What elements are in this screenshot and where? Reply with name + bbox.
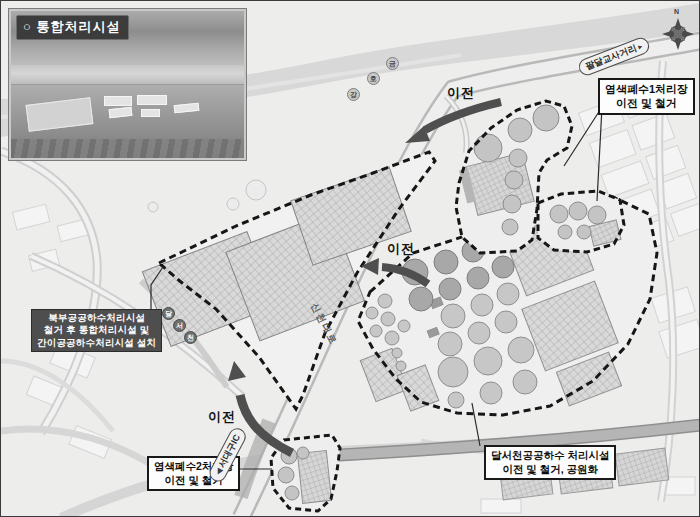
map-canvas: ○ 통합처리시설 염색폐수1처리장 이전 및 철거 북부공공하수처리시설 철거 … bbox=[0, 0, 700, 517]
inset-building bbox=[108, 107, 132, 118]
park-circles bbox=[148, 180, 266, 212]
river-name-char: 금 bbox=[386, 57, 399, 70]
callout-bukbu-line1: 북부공공하수처리시설 bbox=[37, 312, 156, 324]
inset-title: ○ 통합처리시설 bbox=[16, 15, 129, 40]
callout-dye1-line1: 염색폐수1처리장 bbox=[605, 82, 688, 96]
stream-name-char: 서 bbox=[173, 319, 186, 332]
stream-name-char: 달 bbox=[162, 307, 175, 320]
inset-river bbox=[11, 65, 244, 84]
inset-field bbox=[26, 97, 94, 132]
relocate-label-top: 이전 bbox=[447, 84, 475, 102]
relocate-label-mid: 이전 bbox=[387, 240, 415, 258]
inset-building bbox=[174, 102, 200, 112]
callout-dye1: 염색폐수1처리장 이전 및 철거 bbox=[598, 78, 695, 115]
compass-north-label: N bbox=[674, 8, 679, 15]
callout-dalseocheon: 달서천공공하수 처리시설 이전 및 철거, 공원화 bbox=[484, 445, 616, 480]
direction-right-icon: ▸ bbox=[637, 42, 644, 52]
inset-facility-area bbox=[11, 85, 244, 159]
callout-dalseocheon-line1: 달서천공공하수 처리시설 bbox=[491, 449, 609, 463]
river-name-char: 호 bbox=[367, 72, 380, 85]
relocate-label-bottom: 이전 bbox=[208, 408, 236, 426]
river-name-char: 강 bbox=[347, 88, 360, 101]
stream-name-char: 천 bbox=[184, 331, 197, 344]
callout-bukbu-line2: 철거 후 통합처리시설 및 bbox=[37, 324, 156, 336]
callout-bukbu-line3: 간이공공하수처리시설 설치 bbox=[37, 337, 156, 349]
inset-building bbox=[141, 109, 159, 117]
callout-dye1-line2: 이전 및 철거 bbox=[605, 96, 688, 110]
inset-treeline bbox=[11, 139, 244, 158]
inset-building bbox=[104, 96, 132, 106]
relocation-arrowhead-bottom bbox=[228, 361, 246, 381]
callout-bukbu: 북부공공하수처리시설 철거 후 통합처리시설 및 간이공공하수처리시설 설치 bbox=[31, 309, 162, 352]
inset-building bbox=[137, 95, 167, 105]
callout-dalseocheon-line2: 이전 및 철거, 공원화 bbox=[491, 463, 609, 477]
aerial-photo-inset: ○ 통합처리시설 bbox=[9, 9, 246, 160]
